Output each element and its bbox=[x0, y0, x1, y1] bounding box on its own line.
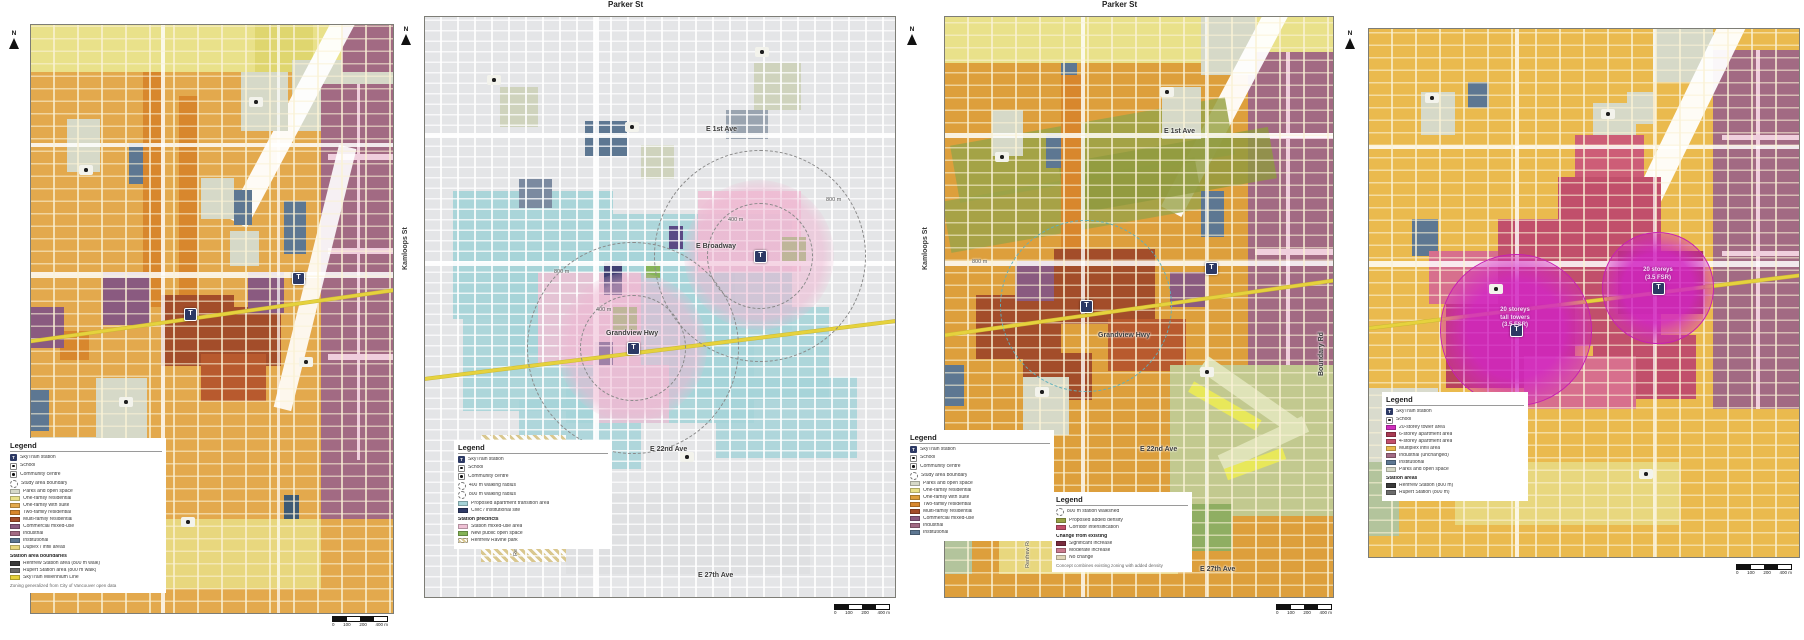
legend-swatch bbox=[10, 517, 20, 522]
legend-swatch bbox=[10, 480, 18, 488]
legend-title: Legend bbox=[910, 433, 1050, 444]
skytrain-station-icon: T bbox=[1652, 282, 1665, 295]
legend-swatch bbox=[10, 503, 20, 508]
zone-block bbox=[519, 179, 552, 208]
zone-block bbox=[641, 145, 674, 180]
legend-swatch bbox=[1386, 453, 1396, 458]
map-panel-combined-concept: N T T Parker StKamloops StE 1st AveGrand… bbox=[902, 0, 1336, 636]
street-label: Boundary Rd bbox=[1318, 332, 1326, 376]
legend-row: Station precincts bbox=[458, 517, 608, 523]
legend-swatch bbox=[1056, 555, 1066, 560]
legend-row: Two-family residential bbox=[910, 502, 1050, 508]
legend-row: Multi-family residential bbox=[910, 509, 1050, 515]
zone-block bbox=[1756, 50, 1760, 409]
legend-swatch bbox=[910, 516, 920, 521]
school-marker bbox=[625, 122, 639, 132]
north-arrow: N bbox=[398, 26, 414, 45]
legend-swatch bbox=[10, 454, 17, 461]
zone-block bbox=[585, 121, 627, 156]
school-marker bbox=[1035, 387, 1049, 397]
scale-bar: 0 100 200 400 m bbox=[332, 616, 388, 627]
legend-swatch bbox=[910, 502, 920, 507]
street-label: E 27th Ave bbox=[698, 572, 733, 580]
legend-row: Significant increase bbox=[1056, 541, 1188, 547]
legend-row: Commercial mixed-use bbox=[10, 524, 162, 530]
zone-block bbox=[31, 307, 64, 348]
zone-block bbox=[230, 231, 259, 266]
legend-swatch bbox=[1386, 439, 1396, 444]
zone-block bbox=[201, 354, 266, 401]
legend-swatch bbox=[1386, 408, 1393, 415]
legend-box: Legend SkyTrain station School Community… bbox=[6, 438, 166, 593]
legend-row: 800 m walking radius bbox=[458, 491, 608, 499]
legend-swatch bbox=[1056, 541, 1066, 546]
north-arrow-icon bbox=[401, 34, 411, 45]
scale-tick: 200 bbox=[1303, 610, 1311, 615]
legend-swatch bbox=[1056, 548, 1066, 553]
legend-title: Legend bbox=[10, 441, 162, 452]
legend-row: Civic / institutional site bbox=[458, 508, 608, 514]
legend-swatch bbox=[458, 524, 468, 529]
legend-title: Legend bbox=[1056, 495, 1188, 506]
north-arrow-icon bbox=[1345, 38, 1355, 49]
legend-row: Station mixed-use area bbox=[458, 524, 608, 530]
legend-row: One-family residential bbox=[910, 488, 1050, 494]
legend-swatch bbox=[1386, 483, 1396, 488]
legend-swatch bbox=[458, 531, 468, 536]
school-marker bbox=[1160, 87, 1174, 97]
school-marker bbox=[119, 397, 133, 407]
legend-swatch bbox=[910, 523, 920, 528]
legend-swatch bbox=[10, 561, 20, 566]
legend-box: Legend SkyTrain station School Community… bbox=[454, 440, 612, 549]
street-label: E 1st Ave bbox=[1164, 128, 1195, 136]
skytrain-station-icon: T bbox=[1080, 300, 1093, 313]
legend-swatch bbox=[10, 575, 20, 580]
legend-swatch bbox=[10, 524, 20, 529]
legend-box: Legend SkyTrain station School 20-storey… bbox=[1382, 392, 1528, 501]
zone-block bbox=[234, 190, 252, 225]
legend-swatch bbox=[1056, 518, 1066, 523]
street-label: E Broadway bbox=[696, 243, 736, 251]
scale-bar: 0 100 200 400 m bbox=[1736, 564, 1792, 575]
legend-items: SkyTrain station School Community centre… bbox=[910, 446, 1050, 536]
legend-swatch bbox=[458, 465, 465, 472]
scale-tick: 200 bbox=[359, 622, 367, 627]
legend-row: Renfrew Station (800 m) bbox=[1386, 483, 1524, 489]
map-panel-existing-zoning: N T T Legend SkyTrain station bbox=[6, 24, 392, 632]
scale-tick: 200 bbox=[861, 610, 869, 615]
legend-row: Proposed apartment transition area bbox=[458, 501, 608, 507]
legend-row: Duplex / infill areas bbox=[10, 545, 162, 551]
school-marker bbox=[1425, 93, 1439, 103]
legend-row: Parks and open space bbox=[1386, 467, 1524, 473]
tower-note-line: 20 storeys bbox=[1622, 267, 1694, 275]
legend-row: 800 m station walkshed bbox=[1056, 508, 1188, 516]
zone-block bbox=[328, 354, 393, 360]
zone-block bbox=[1286, 52, 1290, 388]
north-arrow: N bbox=[6, 30, 22, 49]
legend-swatch bbox=[1386, 425, 1396, 430]
legend-swatch bbox=[1386, 467, 1396, 472]
school-marker bbox=[181, 517, 195, 527]
legend-swatch bbox=[1056, 508, 1064, 516]
skytrain-station-icon: T bbox=[754, 250, 767, 263]
north-arrow-icon bbox=[907, 34, 917, 45]
scale-tick: 400 m bbox=[1319, 610, 1332, 615]
school-marker bbox=[249, 97, 263, 107]
zone-block bbox=[241, 72, 288, 131]
legend-row: Institutional bbox=[1386, 460, 1524, 466]
tower-note-line: 20 storeys bbox=[1465, 307, 1565, 315]
legend-swatch bbox=[458, 473, 465, 480]
legend-row: Community centre bbox=[458, 473, 608, 480]
legend-row: Proposed added density bbox=[1056, 518, 1188, 524]
legend-box: Legend SkyTrain station School Community… bbox=[906, 430, 1054, 541]
legend-row: Industrial (unchanged) bbox=[1386, 453, 1524, 459]
school-marker bbox=[995, 152, 1009, 162]
legend-row: Study area boundary bbox=[910, 472, 1050, 480]
scale-tick: 0 bbox=[1736, 570, 1739, 575]
zone-block bbox=[425, 133, 895, 138]
street-label: Kamloops St bbox=[922, 227, 930, 270]
scale-bar: 0 100 200 400 m bbox=[834, 604, 890, 615]
street-label: 400 m bbox=[596, 306, 611, 314]
school-marker bbox=[1489, 284, 1503, 294]
legend-swatch bbox=[458, 456, 465, 463]
legend-swatch bbox=[910, 446, 917, 453]
street-label: E 22nd Ave bbox=[650, 446, 687, 454]
legend-row: SkyTrain station bbox=[458, 456, 608, 463]
zone-block bbox=[277, 25, 280, 613]
legend-row: Study area boundary bbox=[10, 480, 162, 488]
legend-title: Legend bbox=[458, 443, 608, 454]
legend-swatch bbox=[910, 481, 920, 486]
zone-block bbox=[284, 201, 306, 254]
zone-block bbox=[96, 378, 147, 443]
legend-swatch bbox=[1056, 525, 1066, 530]
skytrain-station-icon: T bbox=[1205, 262, 1218, 275]
zone-block bbox=[31, 272, 393, 278]
legend-row: 20-storey tower area bbox=[1386, 425, 1524, 431]
tower-note-line: (3.5 FSR) bbox=[1622, 275, 1694, 283]
zone-block bbox=[328, 248, 393, 254]
street-label: 800 m bbox=[826, 196, 841, 204]
legend-row: One-family with suite bbox=[10, 503, 162, 509]
legend-row: Rupert Station (800 m) bbox=[1386, 490, 1524, 496]
zone-block bbox=[1205, 17, 1208, 597]
school-marker bbox=[79, 165, 93, 175]
skytrain-station-icon: T bbox=[627, 342, 640, 355]
legend-row: Change from existing bbox=[1056, 534, 1188, 540]
street-label: 800 m bbox=[554, 268, 569, 276]
zone-block bbox=[1369, 261, 1799, 266]
scale-tick: 100 bbox=[1747, 570, 1755, 575]
zone-block bbox=[1255, 249, 1333, 255]
map-panel-station-area-concept: N T T Parker StKamloops StE 1st AveE Bro… bbox=[398, 0, 896, 636]
legend-row: Multiplex infill area bbox=[1386, 446, 1524, 452]
legend-swatch bbox=[1386, 417, 1393, 424]
legend-row: Parks and open space bbox=[910, 481, 1050, 487]
street-label: Parker St bbox=[608, 1, 643, 9]
zone-block bbox=[754, 63, 801, 109]
legend-swatch bbox=[10, 471, 17, 478]
legend-swatch bbox=[10, 531, 20, 536]
legend-row: Commercial mixed-use bbox=[910, 516, 1050, 522]
legend-row: School bbox=[910, 455, 1050, 462]
legend-swatch bbox=[458, 482, 466, 490]
legend-row: One-family residential bbox=[10, 496, 162, 502]
street-label: Grandview Hwy bbox=[606, 330, 658, 338]
north-arrow-icon bbox=[9, 38, 19, 49]
legend-swatch bbox=[910, 455, 917, 462]
legend-row: Two-family residential bbox=[10, 510, 162, 516]
zone-block bbox=[31, 143, 393, 148]
street-label: E 1st Ave bbox=[706, 126, 737, 134]
legend-row: No change bbox=[1056, 555, 1188, 561]
scale-bar: 0 100 200 400 m bbox=[1276, 604, 1332, 615]
legend-swatch bbox=[910, 509, 920, 514]
tower-zone-note: 20 storeys (3.5 FSR) bbox=[1622, 267, 1694, 282]
scale-tick: 200 bbox=[1763, 570, 1771, 575]
legend-swatch bbox=[1386, 432, 1396, 437]
north-label: N bbox=[404, 26, 409, 33]
street-label: 400 m bbox=[728, 216, 743, 224]
school-marker bbox=[1200, 367, 1214, 377]
legend-swatch bbox=[458, 501, 468, 506]
scale-tick: 400 m bbox=[877, 610, 890, 615]
legend-row: SkyTrain station bbox=[1386, 408, 1524, 415]
zone-block bbox=[1468, 82, 1490, 108]
legend-row: Community centre bbox=[10, 471, 162, 478]
legend-swatch bbox=[910, 488, 920, 493]
map-panel-tower-concept: N 20 storeys tall towers (3.5 FSR) 20 st… bbox=[1342, 24, 1802, 632]
zone-block bbox=[1369, 145, 1799, 149]
school-marker bbox=[1639, 469, 1653, 479]
legend-swatch bbox=[10, 496, 20, 501]
zone-block bbox=[103, 272, 150, 325]
legend-title: Legend bbox=[1386, 395, 1524, 406]
zoning-maps-figure: N T T Legend SkyTrain station bbox=[0, 0, 1804, 640]
legend-row: Institutional bbox=[910, 530, 1050, 536]
legend-swatch bbox=[10, 510, 20, 515]
legend-swatch bbox=[458, 491, 466, 499]
zone-block bbox=[201, 178, 234, 219]
legend-footnote: Concept combines existing zoning with ad… bbox=[1056, 563, 1176, 569]
zone-block bbox=[1575, 135, 1644, 177]
legend-swatch bbox=[910, 472, 918, 480]
legend-swatch bbox=[458, 508, 468, 513]
legend-items: SkyTrain station School 20-storey tower … bbox=[1386, 408, 1524, 496]
legend-row: SkyTrain station bbox=[10, 454, 162, 461]
legend-row: Corridor intensification bbox=[1056, 525, 1188, 531]
tower-note-line: tall towers bbox=[1465, 315, 1565, 323]
legend-row: Industrial bbox=[910, 523, 1050, 529]
legend-items: SkyTrain station School Community centre… bbox=[10, 454, 162, 581]
zone-block bbox=[945, 365, 964, 406]
north-label: N bbox=[1348, 30, 1353, 37]
school-marker bbox=[299, 357, 313, 367]
street-label: E 27th Ave bbox=[1200, 566, 1235, 574]
legend-row: Station area boundaries bbox=[10, 554, 162, 560]
street-label: E 22nd Ave bbox=[1140, 446, 1177, 454]
legend-swatch bbox=[458, 538, 468, 543]
north-arrow: N bbox=[904, 26, 920, 45]
scale-tick: 100 bbox=[1287, 610, 1295, 615]
legend-row: 4-storey apartment area bbox=[1386, 439, 1524, 445]
legend-row: New public open space bbox=[458, 531, 608, 537]
legend-swatch bbox=[10, 463, 17, 470]
legend-box-secondary: Legend 800 m station walkshed Proposed a… bbox=[1052, 492, 1192, 572]
scale-tick: 400 m bbox=[375, 622, 388, 627]
legend-swatch bbox=[1386, 490, 1396, 495]
legend-row: 6-storey apartment area bbox=[1386, 432, 1524, 438]
skytrain-station-icon: T bbox=[292, 272, 305, 285]
legend-swatch bbox=[1386, 446, 1396, 451]
scale-tick: 0 bbox=[332, 622, 335, 627]
legend-swatch bbox=[10, 489, 20, 494]
scale-tick: 0 bbox=[834, 610, 837, 615]
zone-block bbox=[500, 87, 538, 128]
legend-row: Station areas bbox=[1386, 476, 1524, 482]
legend-row: Rupert Station area (800 m walk) bbox=[10, 568, 162, 574]
zone-block bbox=[945, 133, 1333, 138]
legend-items: 800 m station walkshed Proposed added de… bbox=[1056, 508, 1188, 560]
legend-row: School bbox=[1386, 417, 1524, 424]
zone-block bbox=[31, 390, 49, 431]
street-label: Kamloops St bbox=[402, 227, 410, 270]
north-label: N bbox=[910, 26, 915, 33]
legend-swatch bbox=[10, 545, 20, 550]
zone-block bbox=[716, 377, 857, 458]
legend-swatch bbox=[1386, 460, 1396, 465]
legend-row: Institutional bbox=[10, 538, 162, 544]
legend-row: Renfrew Station area (800 m walk) bbox=[10, 561, 162, 567]
tower-zone-note: 20 storeys tall towers (3.5 FSR) bbox=[1465, 307, 1565, 330]
school-marker bbox=[755, 47, 769, 57]
school-marker bbox=[1601, 109, 1615, 119]
legend-row: One-family with suite bbox=[910, 495, 1050, 501]
scale-tick: 100 bbox=[845, 610, 853, 615]
legend-swatch bbox=[910, 463, 917, 470]
legend-items: SkyTrain station School Community centre… bbox=[458, 456, 608, 543]
legend-row: 400 m walking radius bbox=[458, 482, 608, 490]
scale-tick: 0 bbox=[1276, 610, 1279, 615]
skytrain-station-icon: T bbox=[184, 308, 197, 321]
scale-tick: 100 bbox=[343, 622, 351, 627]
tower-note-line: (3.5 FSR) bbox=[1465, 322, 1565, 330]
scale-tick: 400 m bbox=[1779, 570, 1792, 575]
legend-row: School bbox=[10, 463, 162, 470]
legend-swatch bbox=[10, 568, 20, 573]
legend-row: Moderate increase bbox=[1056, 548, 1188, 554]
street-label: 800 m bbox=[972, 258, 987, 266]
legend-row: Parks and open space bbox=[10, 489, 162, 495]
legend-swatch bbox=[910, 495, 920, 500]
legend-swatch bbox=[10, 538, 20, 543]
north-label: N bbox=[12, 30, 17, 37]
legend-row: Community centre bbox=[910, 463, 1050, 470]
legend-swatch bbox=[910, 530, 920, 535]
legend-row: Industrial bbox=[10, 531, 162, 537]
legend-row: Renfrew Ravine park bbox=[458, 538, 608, 544]
legend-footnote: Zoning generalized from City of Vancouve… bbox=[10, 583, 130, 589]
north-arrow: N bbox=[1342, 30, 1358, 49]
legend-row: Multi-family residential bbox=[10, 517, 162, 523]
school-marker bbox=[487, 75, 501, 85]
legend-row: SkyTrain Millennium Line bbox=[10, 575, 162, 581]
zone-block bbox=[1627, 92, 1653, 124]
legend-row: School bbox=[458, 465, 608, 472]
street-label: Parker St bbox=[1102, 1, 1137, 9]
street-label: Grandview Hwy bbox=[1098, 332, 1150, 340]
legend-row: SkyTrain station bbox=[910, 446, 1050, 453]
